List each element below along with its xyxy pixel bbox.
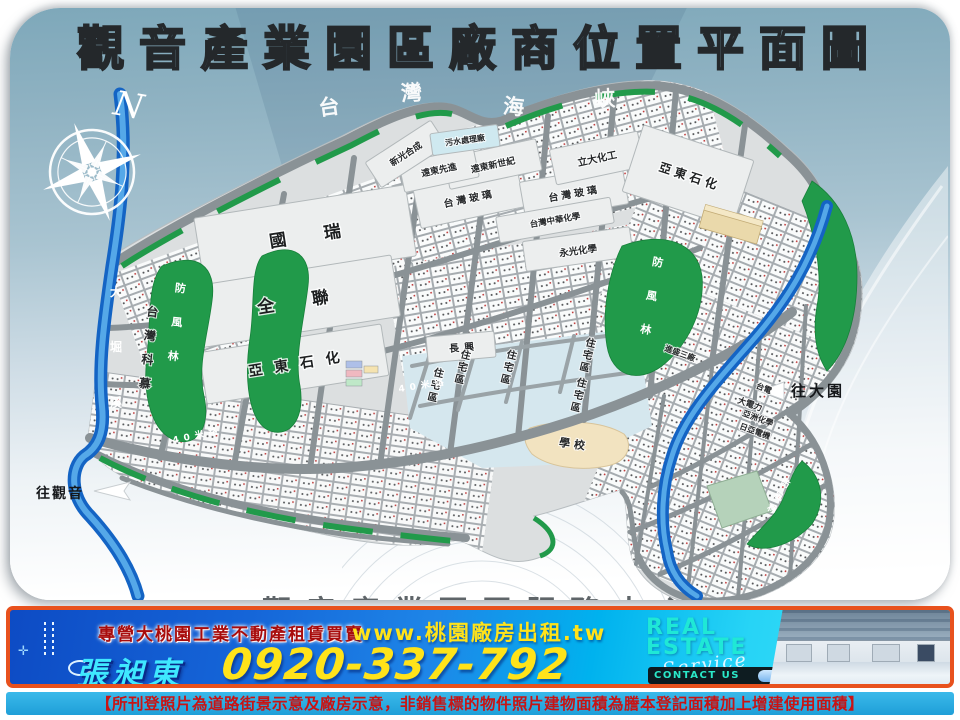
direction-to-dayuan: 往大園: [791, 382, 845, 400]
direction-to-guanyin: 往觀音: [36, 485, 84, 502]
warehouse-door: [786, 644, 812, 662]
banner-dash-decoration: [44, 622, 46, 658]
to-guanyin-arrow: [94, 482, 130, 500]
slide: 觀音產業園區廠商位置平面圖: [0, 0, 960, 720]
banner-phone-number[interactable]: 0920-337-792: [219, 640, 571, 688]
sea-label-char: 台: [317, 94, 341, 121]
warehouse-floor: [764, 662, 950, 684]
sea-label-char: 峽: [594, 87, 617, 112]
warehouse-ceiling: [764, 610, 950, 641]
footer-disclaimer: 【所刊登照片為道路街景示意及廠房示意，非銷售標的物件照片建物面積為謄本登記面積加…: [6, 692, 954, 715]
compass-rose: N: [30, 80, 160, 230]
warehouse-door-dark: [917, 644, 936, 662]
warehouse-photo: [764, 610, 950, 684]
ad-banner: ✛ 專營大桃園工業不動產租賃買賣 www.桃園廠房出租.tw 張昶東 0920-…: [6, 606, 954, 688]
warehouse-door: [827, 644, 849, 662]
map-bottom-caption: 觀音產業園區服務中心: [262, 595, 702, 600]
compass-north-label: N: [109, 83, 147, 128]
banner-plus-decoration: ✛: [18, 644, 29, 659]
banner-agent-name: 張昶東: [76, 648, 184, 688]
warehouse-door: [872, 644, 900, 662]
contact-us-label: CONTACT US: [654, 670, 740, 681]
sea-label-char: 灣: [400, 80, 423, 105]
banner-dash-decoration: [52, 622, 54, 658]
map-card: 觀音產業園區廠商位置平面圖: [10, 8, 950, 600]
sea-label-char: 海: [502, 94, 525, 120]
